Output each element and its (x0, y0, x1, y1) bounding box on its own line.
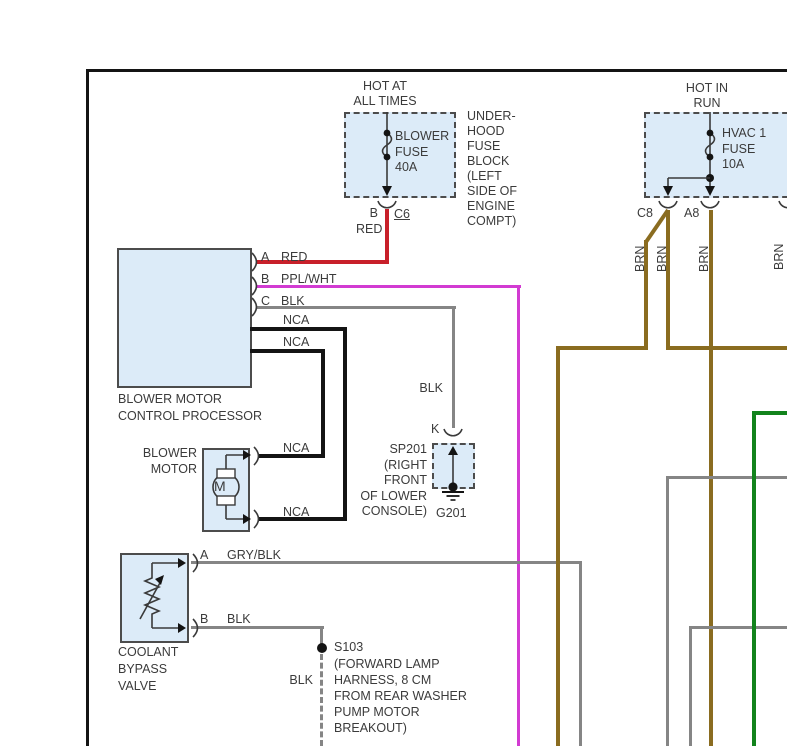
s103-note-line: HARNESS, 8 CM (334, 672, 467, 688)
brn-wire-2-vertical (666, 210, 670, 350)
s103-note-line: BREAKOUT) (334, 720, 467, 736)
right-power-header-line1: HOT IN (652, 81, 762, 96)
brn-wire-2-label: BRN (655, 246, 670, 272)
note-line: FUSE (467, 139, 517, 154)
ground-icon (440, 480, 466, 504)
fuse-label-line: 10A (722, 157, 766, 173)
s103-name-label: S103 (334, 640, 363, 655)
pin-c-arc-icon (249, 296, 261, 318)
frame-left-border (86, 69, 89, 746)
c6-wire-color-label: RED (356, 222, 382, 237)
s103-wire-label: BLK (283, 673, 313, 688)
c8-connector-label: C8 (637, 206, 653, 221)
processor-pin-b-label: B (261, 272, 269, 287)
wiring-diagram: M HOT AT ALL TIMES UNDER- HOOD FUSE BLOC… (0, 0, 787, 746)
left-power-header-line2: ALL TIMES (330, 94, 440, 109)
sp201-note-line: FRONT (347, 473, 427, 489)
ppl-wht-wire-vertical (517, 285, 520, 746)
valve-wire-b-label: BLK (227, 612, 251, 627)
processor-name-line2: CONTROL PROCESSOR (118, 408, 262, 425)
sp201-note-line: (RIGHT (347, 458, 427, 474)
gry-blk-wire-vertical (579, 561, 582, 746)
gray-wire-right-1-vertical (666, 476, 669, 746)
green-wire-horizontal (752, 411, 787, 415)
a8-connector-label: A8 (684, 206, 699, 221)
processor-wire-b-label: PPL/WHT (281, 272, 337, 287)
brn-wire-1-label: BRN (633, 246, 648, 272)
left-power-header-line1: HOT AT (330, 79, 440, 94)
nca-wire-2b (321, 349, 325, 458)
frame-top-border (86, 69, 787, 72)
red-wire-horizontal (257, 260, 389, 264)
pin-b-arc-icon (249, 275, 261, 297)
fuse-label-line: BLOWER (395, 129, 449, 145)
s103-note-line: FROM REAR WASHER (334, 688, 467, 704)
pin-a-arc-icon (249, 251, 261, 273)
fuse-label-line: 40A (395, 160, 449, 176)
note-line: SIDE OF (467, 184, 517, 199)
note-line: BLOCK (467, 154, 517, 169)
blower-motor-name-line2: MOTOR (118, 462, 197, 478)
sp201-note-line: SP201 (347, 442, 427, 458)
valve-blk-wire-horizontal (191, 626, 324, 629)
brn-wire-1-horizontal (556, 346, 648, 350)
connector-c8-icon (657, 200, 679, 212)
brn-wire-2-horizontal (666, 346, 787, 350)
note-line: HOOD (467, 124, 517, 139)
processor-name-line1: BLOWER MOTOR (118, 391, 262, 408)
processor-nca-1-label: NCA (283, 313, 309, 328)
c6-pin-label: B (362, 206, 378, 221)
valve-wire-a-label: GRY/BLK (227, 548, 281, 563)
hvac-fuse-label: HVAC 1 FUSE 10A (722, 126, 766, 173)
note-line: ENGINE (467, 199, 517, 214)
processor-pin-c-label: C (261, 294, 270, 309)
gray-wire-right-1-horizontal (666, 476, 787, 479)
s103-note-line: PUMP MOTOR (334, 704, 467, 720)
note-line: COMPT) (467, 214, 517, 229)
brn-wire-1-drop (556, 346, 560, 746)
valve-pin-a-label: A (200, 548, 208, 563)
connector-k-icon (442, 428, 464, 440)
coolant-valve-name: COOLANT BYPASS VALVE (118, 644, 178, 695)
s103-blk-dashed-wire (320, 654, 323, 746)
blower-fuse-label: BLOWER FUSE 40A (395, 129, 449, 176)
valve-name-line: VALVE (118, 678, 178, 695)
sp201-note-line: OF LOWER (347, 489, 427, 505)
processor-wire-c-label: BLK (281, 294, 305, 309)
c6-connector-label: C6 (394, 207, 410, 222)
valve-resistor-symbol (120, 553, 195, 643)
motor-nca-bottom-label: NCA (283, 505, 309, 520)
brn-wire-3-label: BRN (697, 246, 712, 272)
underhood-location-note: UNDER- HOOD FUSE BLOCK (LEFT SIDE OF ENG… (467, 109, 517, 229)
processor-name: BLOWER MOTOR CONTROL PROCESSOR (118, 391, 262, 425)
connector-edge-icon (777, 200, 787, 212)
right-power-header: HOT IN RUN (652, 81, 762, 111)
blower-motor-name: BLOWER MOTOR (118, 446, 197, 477)
motor-symbol-letter: M (214, 479, 238, 494)
processor-pin-a-label: A (261, 250, 269, 265)
green-wire-vertical (752, 411, 756, 746)
blower-motor-name-line1: BLOWER (118, 446, 197, 462)
fuse-label-line: HVAC 1 (722, 126, 766, 142)
sp201-note-line: CONSOLE) (347, 504, 427, 520)
sp201-wire-label: BLK (409, 381, 443, 396)
gray-wire-right-2-vertical (689, 626, 692, 746)
processor-nca-2-label: NCA (283, 335, 309, 350)
valve-pin-b-label: B (200, 612, 208, 627)
fuse-label-line: FUSE (395, 145, 449, 161)
s103-splice-dot (317, 643, 327, 653)
motor-nca-top-label: NCA (283, 441, 309, 456)
valve-name-line: COOLANT (118, 644, 178, 661)
blk-wire-vertical (452, 306, 455, 428)
g201-label: G201 (436, 506, 467, 521)
sp201-location-note: SP201 (RIGHT FRONT OF LOWER CONSOLE) (347, 442, 427, 520)
red-wire-vertical (385, 209, 389, 264)
k-pin-label: K (431, 422, 439, 437)
note-line: (LEFT (467, 169, 517, 184)
s103-note-line: (FORWARD LAMP (334, 656, 467, 672)
s103-note: (FORWARD LAMP HARNESS, 8 CM FROM REAR WA… (334, 656, 467, 736)
fuse-label-line: FUSE (722, 142, 766, 158)
blower-motor-control-processor-box (117, 248, 252, 388)
brn-wire-4-label: BRN (772, 244, 787, 270)
connector-a8-icon (699, 200, 721, 212)
right-power-header-line2: RUN (652, 96, 762, 111)
gray-wire-right-2-horizontal (689, 626, 787, 629)
valve-name-line: BYPASS (118, 661, 178, 678)
left-power-header: HOT AT ALL TIMES (330, 79, 440, 109)
processor-wire-a-label: RED (281, 250, 307, 265)
note-line: UNDER- (467, 109, 517, 124)
